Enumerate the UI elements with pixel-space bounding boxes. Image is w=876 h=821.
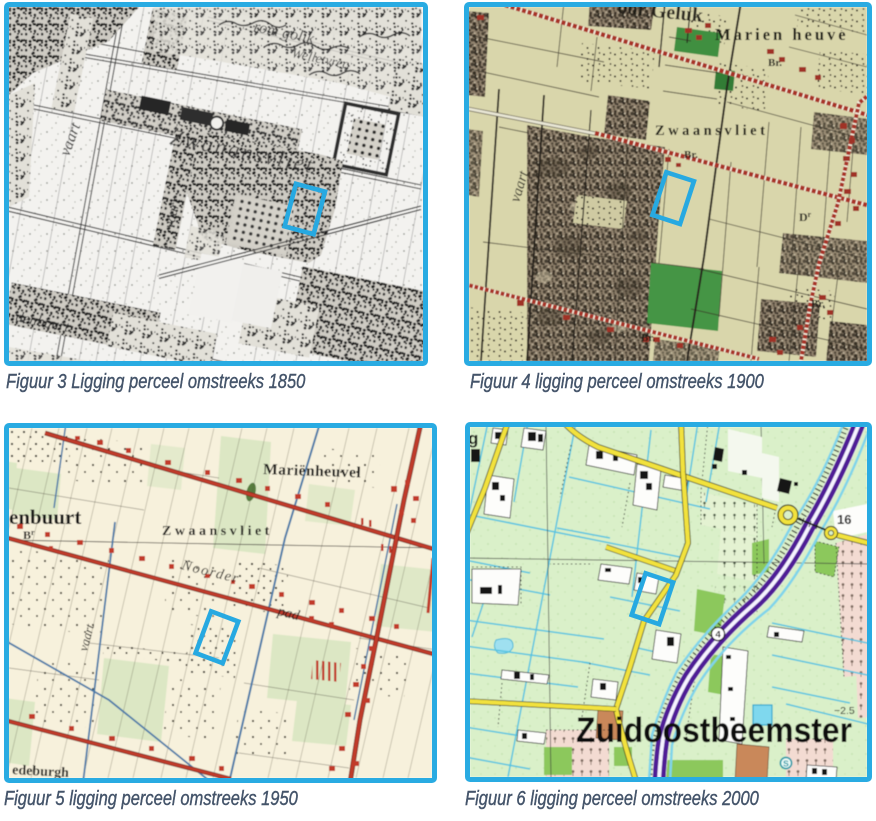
svg-text:S: S (783, 759, 789, 769)
svg-text:Br.: Br. (641, 332, 655, 344)
svg-text:g: g (470, 429, 478, 448)
svg-text:enbuurt: enbuurt (9, 505, 81, 529)
svg-text:Marien heuve: Marien heuve (715, 25, 849, 44)
svg-text:Br.: Br. (768, 57, 782, 69)
svg-text:4: 4 (715, 630, 721, 641)
svg-text:Br.: Br. (811, 298, 825, 310)
svg-text:edeburgh: edeburgh (12, 763, 70, 778)
svg-text:16: 16 (837, 512, 851, 527)
svg-text:Zuidoostbeemster: Zuidoostbeemster (576, 711, 852, 750)
svg-text:Zwaansvliet: Zwaansvliet (655, 123, 768, 139)
svg-text:Br.: Br. (684, 149, 698, 161)
svg-text:Mariënheuvel: Mariënheuvel (263, 461, 362, 481)
svg-text:Zwaansvliet: Zwaansvliet (162, 524, 273, 539)
